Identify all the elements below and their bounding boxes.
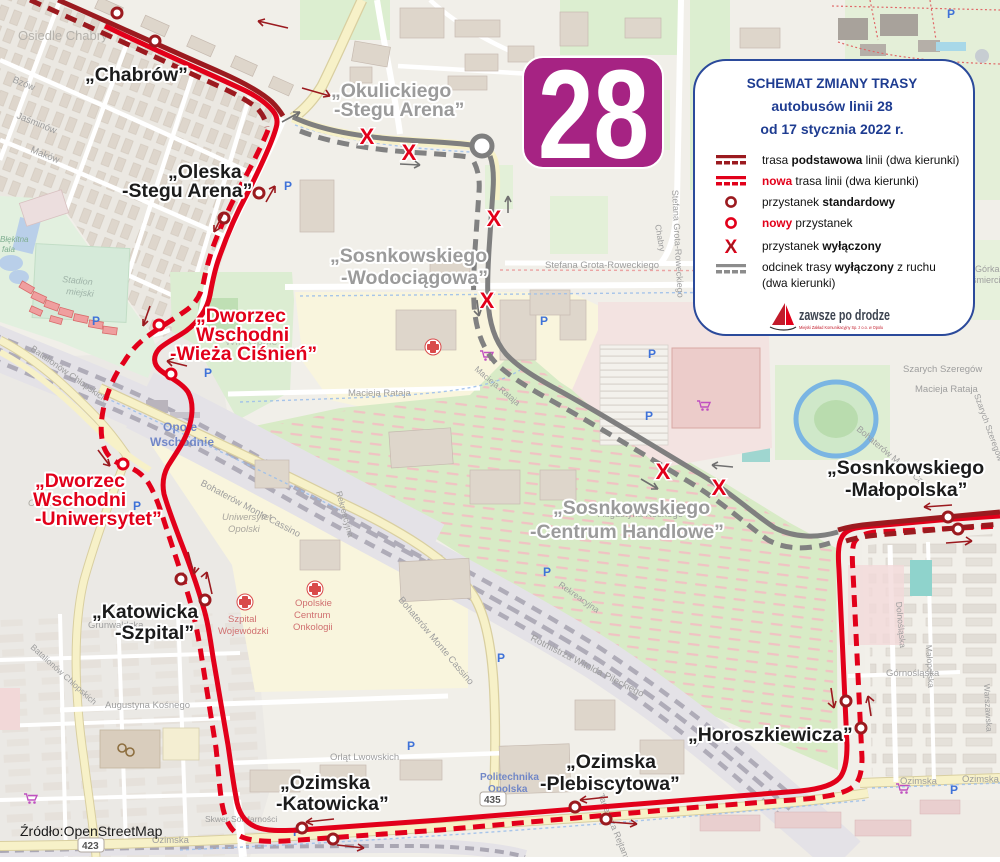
svg-text:P: P <box>407 739 415 753</box>
svg-text:fala: fala <box>2 245 15 254</box>
svg-text:Szarych Szeregów: Szarych Szeregów <box>903 364 982 375</box>
svg-text:Uniwersytet: Uniwersytet <box>222 512 272 523</box>
svg-text:Opolski: Opolski <box>228 524 261 535</box>
svg-text:-Wieża Ciśnień”: -Wieża Ciśnień” <box>170 343 317 365</box>
svg-text:P: P <box>497 651 505 665</box>
svg-text:X: X <box>487 206 502 231</box>
svg-text:X: X <box>402 140 417 165</box>
svg-text:nowy przystanek: nowy przystanek <box>762 216 853 230</box>
svg-text:odcinek trasy wyłączony z ruch: odcinek trasy wyłączony z ruchu <box>762 260 936 274</box>
svg-text:X: X <box>360 124 375 149</box>
svg-text:P: P <box>947 7 955 21</box>
svg-text:Wojewódzki: Wojewódzki <box>218 626 269 637</box>
svg-text:28: 28 <box>538 44 649 185</box>
svg-text:Górka: Górka <box>975 264 1000 274</box>
svg-text:Szpital: Szpital <box>228 614 257 625</box>
svg-text:Centrum: Centrum <box>294 610 331 621</box>
svg-text:P: P <box>648 347 656 361</box>
svg-text:Osiedle Chabry: Osiedle Chabry <box>18 28 108 43</box>
svg-text:„Sosnkowskiego: „Sosnkowskiego <box>827 457 984 479</box>
svg-text:-Szpital”: -Szpital” <box>115 622 194 644</box>
svg-text:X: X <box>656 459 671 484</box>
svg-text:435: 435 <box>484 795 501 806</box>
svg-text:-Małopolska”: -Małopolska” <box>845 479 967 501</box>
svg-text:„Horoszkiewicza”: „Horoszkiewicza” <box>688 724 853 746</box>
svg-text:(dwa kierunki): (dwa kierunki) <box>762 276 835 290</box>
svg-text:śmierci: śmierci <box>972 275 1000 285</box>
svg-text:Błękitna: Błękitna <box>0 235 29 244</box>
svg-text:P: P <box>543 565 551 579</box>
svg-text:P: P <box>284 179 292 193</box>
svg-text:Politechnika: Politechnika <box>480 772 539 783</box>
svg-text:SCHEMAT ZMIANY TRASY: SCHEMAT ZMIANY TRASY <box>747 76 918 91</box>
svg-text:Augustyna Kośnego: Augustyna Kośnego <box>105 700 190 711</box>
svg-text:P: P <box>204 366 212 380</box>
svg-text:trasa podstawowa linii (dwa ki: trasa podstawowa linii (dwa kierunki) <box>762 153 959 167</box>
svg-text:P: P <box>645 409 653 423</box>
svg-text:-Katowicka”: -Katowicka” <box>276 793 389 815</box>
svg-text:Onkologii: Onkologii <box>293 622 333 633</box>
svg-text:-Wodociągowa”: -Wodociągowa” <box>341 267 488 289</box>
svg-text:-Uniwersytet”: -Uniwersytet” <box>35 508 162 530</box>
svg-text:„Katowicka: „Katowicka <box>92 601 198 623</box>
svg-text:Miejski Zakład Komunikacyjny S: Miejski Zakład Komunikacyjny Sp. z o.o. … <box>799 325 883 331</box>
svg-text:„Chabrów”: „Chabrów” <box>85 64 188 86</box>
svg-text:Górnośląska: Górnośląska <box>886 668 940 679</box>
svg-text:Macieja Rataja: Macieja Rataja <box>915 384 979 395</box>
svg-text:„Ozimska: „Ozimska <box>566 751 656 773</box>
svg-text:Źródło:OpenStreetMap: Źródło:OpenStreetMap <box>20 823 163 839</box>
svg-text:zawsze po drodze: zawsze po drodze <box>799 307 890 324</box>
svg-text:-Centrum Handlowe”: -Centrum Handlowe” <box>530 521 724 543</box>
svg-text:Macieja Rataja: Macieja Rataja <box>348 388 412 399</box>
svg-text:X: X <box>727 239 736 254</box>
svg-text:Opolskie: Opolskie <box>295 598 332 609</box>
svg-text:-Stegu Arena”: -Stegu Arena” <box>334 99 464 121</box>
svg-text:-Plebiscytowa”: -Plebiscytowa” <box>540 773 680 795</box>
svg-text:„Ozimska: „Ozimska <box>280 772 370 794</box>
svg-text:„Sosnkowskiego: „Sosnkowskiego <box>553 497 710 519</box>
svg-text:przystanek wyłączony: przystanek wyłączony <box>762 239 882 253</box>
svg-text:od 17 stycznia 2022 r.: od 17 stycznia 2022 r. <box>760 121 903 137</box>
svg-text:X: X <box>480 288 495 313</box>
svg-text:Orląt Lwowskich: Orląt Lwowskich <box>330 752 399 763</box>
svg-text:423: 423 <box>82 841 99 852</box>
svg-text:P: P <box>92 314 100 328</box>
svg-text:przystanek standardowy: przystanek standardowy <box>762 195 896 209</box>
svg-text:„Sosnkowskiego: „Sosnkowskiego <box>330 245 487 267</box>
svg-text:nowa trasa linii (dwa kierunki: nowa trasa linii (dwa kierunki) <box>762 174 919 188</box>
svg-text:P: P <box>540 314 548 328</box>
svg-text:X: X <box>712 475 727 500</box>
svg-text:autobusów linii 28: autobusów linii 28 <box>771 98 893 114</box>
svg-text:-Stegu Arena”: -Stegu Arena” <box>122 180 252 202</box>
svg-text:Stefana Grota-Roweckiego: Stefana Grota-Roweckiego <box>545 260 659 271</box>
